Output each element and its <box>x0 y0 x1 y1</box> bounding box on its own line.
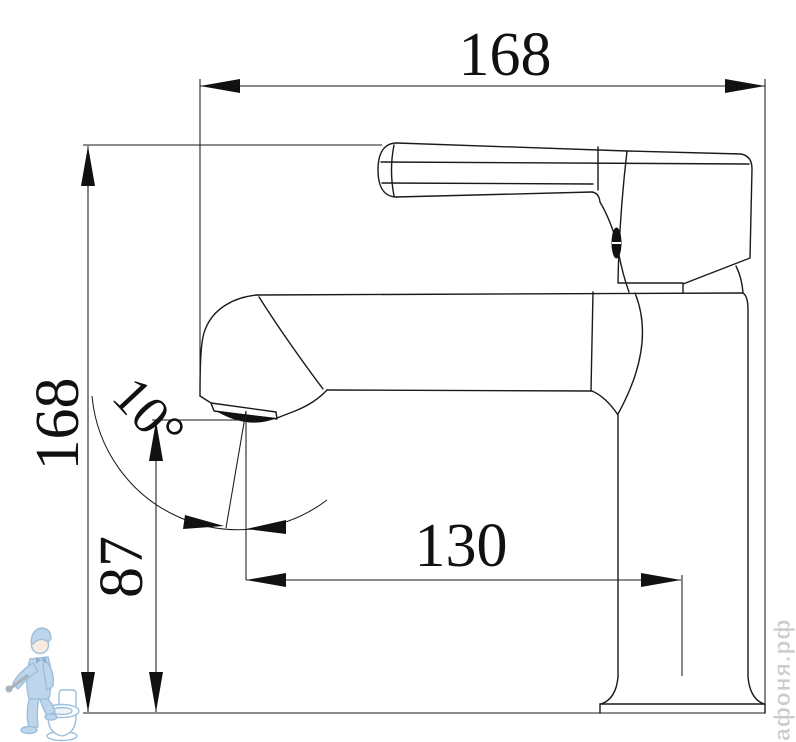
dim-top-width-label: 168 <box>459 21 552 89</box>
dim-spout-angle-label: 10° <box>101 365 196 461</box>
arc-arrow-icon <box>183 515 224 529</box>
technical-drawing-canvas: 168 168 87 <box>0 0 796 742</box>
arrow-right-icon <box>641 573 681 587</box>
arrow-down-icon <box>81 672 95 712</box>
faucet-technical-drawing: 168 168 87 <box>0 0 796 742</box>
dimension-spout-reach: 130 <box>246 411 682 676</box>
plumber-mascot-watermark <box>6 628 80 741</box>
aerator <box>200 390 327 423</box>
arrow-left-icon <box>246 573 286 587</box>
arc-arrow-icon <box>246 520 286 534</box>
cartridge-housing <box>612 151 753 293</box>
dimension-top-width: 168 <box>200 21 765 704</box>
faucet-outline <box>200 143 765 713</box>
plumber-figure <box>6 628 58 734</box>
arrow-down-icon <box>149 672 163 712</box>
dimension-annotations: 168 168 87 <box>24 21 765 713</box>
faucet-handle-lever <box>378 143 749 292</box>
arrow-up-icon <box>81 146 95 186</box>
dimension-spout-angle: 10° <box>92 365 327 534</box>
dim-spout-reach-label: 130 <box>415 512 508 580</box>
arrow-left-icon <box>200 79 240 93</box>
faucet-body-and-spout <box>200 292 743 423</box>
dim-left-height-label: 168 <box>24 378 92 471</box>
watermark-site-label: афоня.рф <box>769 618 795 741</box>
dimension-spout-height: 87 <box>88 420 246 712</box>
arrow-right-icon <box>725 79 765 93</box>
dimension-left-height: 168 <box>24 145 382 712</box>
dim-spout-height-label: 87 <box>88 536 156 598</box>
